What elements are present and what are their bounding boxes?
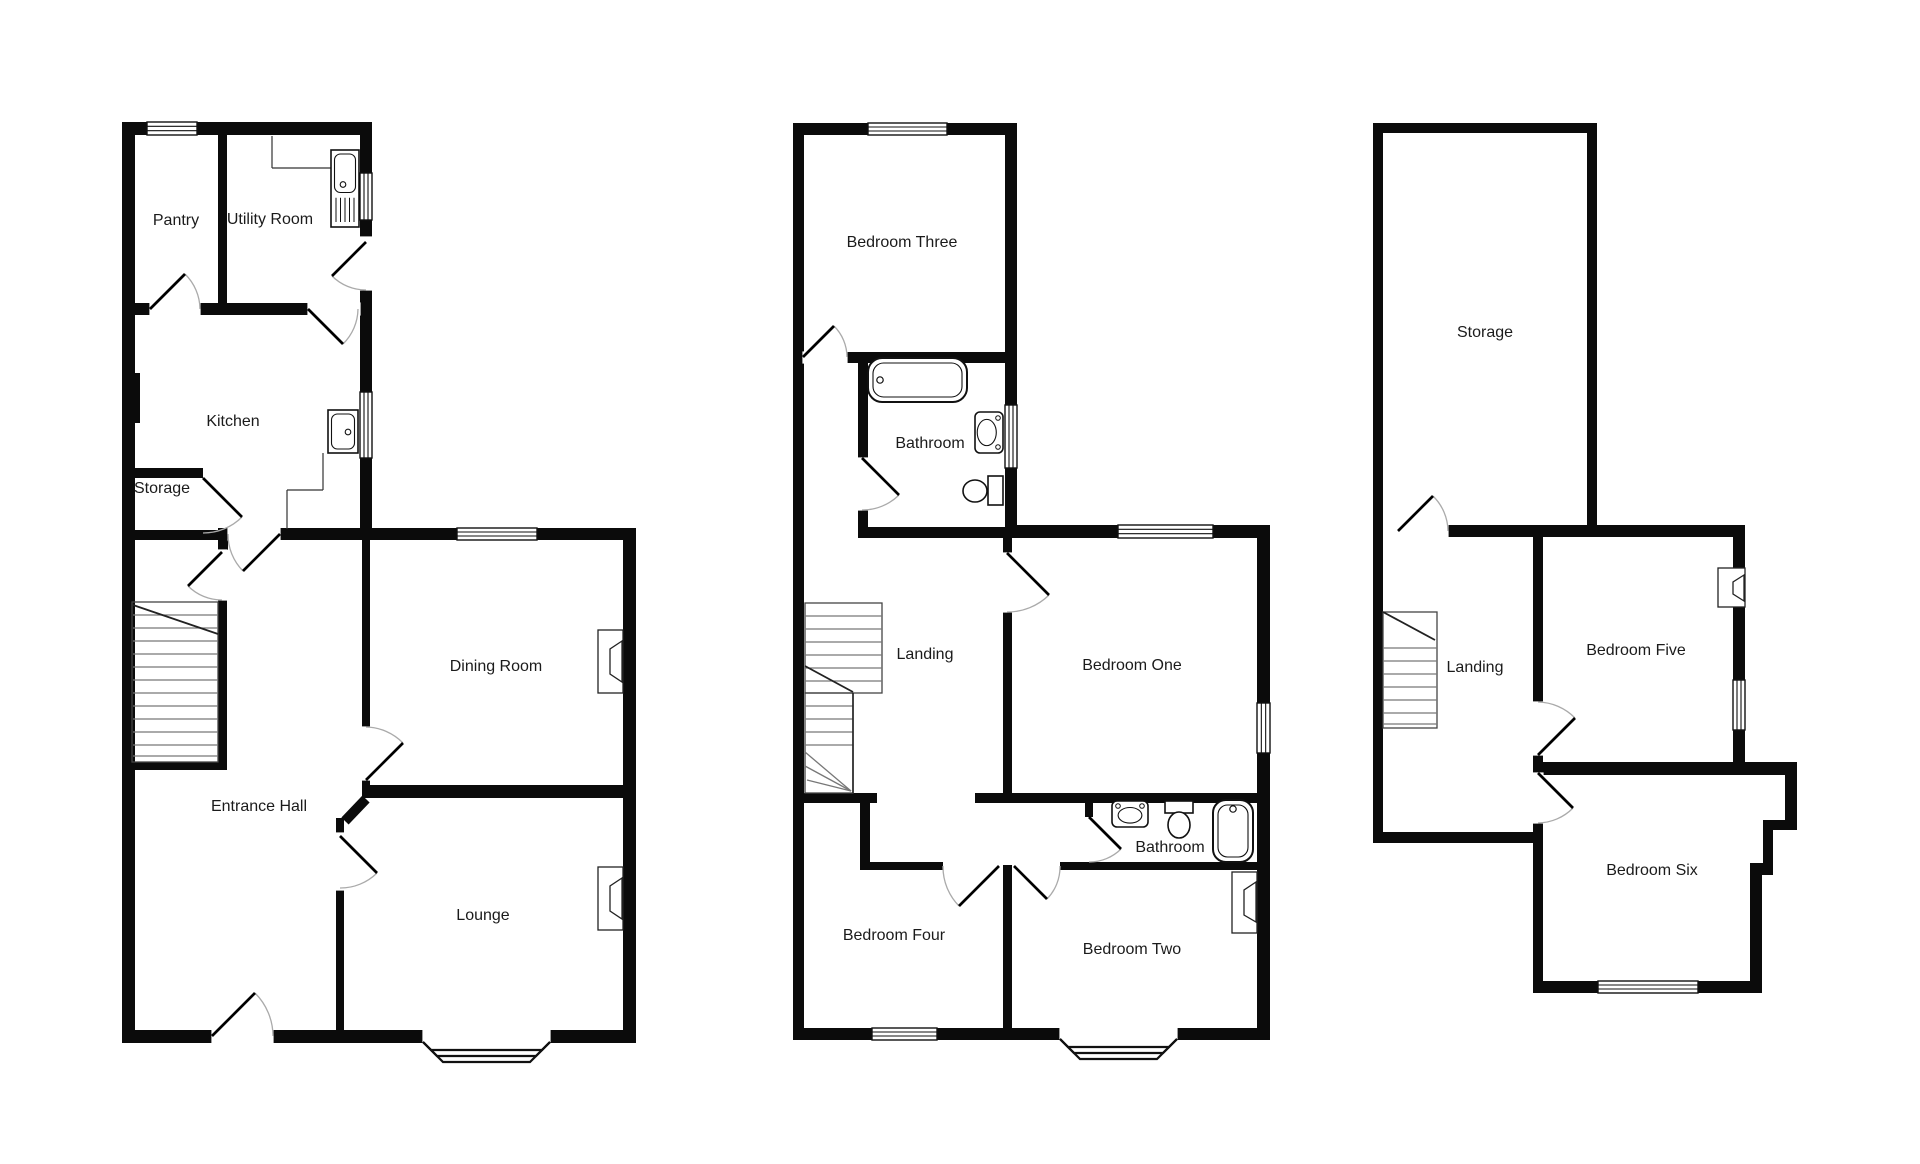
door-leaf <box>203 478 242 517</box>
door-swing-arc <box>943 866 959 906</box>
door-leaf <box>188 552 222 586</box>
room-label: Bathroom <box>1135 839 1204 856</box>
door-leaf <box>366 743 403 780</box>
stairs <box>805 693 853 793</box>
window <box>1733 680 1745 730</box>
wall <box>860 862 943 870</box>
wall <box>793 123 804 1040</box>
door-opening <box>211 1029 273 1043</box>
room-label: Landing <box>897 646 954 663</box>
wall <box>1257 525 1270 1040</box>
wall <box>122 1030 636 1043</box>
wall <box>1005 123 1017 538</box>
wall <box>218 135 227 305</box>
floor-ground-floor: PantryUtility RoomKitchenStorageEntrance… <box>122 122 636 1062</box>
door-opening <box>361 726 370 780</box>
wall <box>1373 123 1383 843</box>
floorplan-page: PantryUtility RoomKitchenStorageEntrance… <box>0 0 1920 1164</box>
stair-break-line <box>805 666 853 692</box>
window <box>1257 703 1270 753</box>
room-label: Landing <box>1447 659 1504 676</box>
stairs <box>1383 612 1437 728</box>
bathtub-tap <box>877 377 883 383</box>
toilet-bowl <box>963 480 987 502</box>
room-label: Bedroom Four <box>843 927 946 944</box>
door-opening <box>1002 552 1012 612</box>
room-label: Bedroom One <box>1082 657 1182 674</box>
window <box>1598 981 1698 993</box>
door-swing-arc <box>1047 866 1060 899</box>
door-swing-arc <box>366 727 403 743</box>
door-opening <box>1532 772 1543 823</box>
wall <box>1060 862 1263 870</box>
door-leaf <box>959 866 999 906</box>
door-opening <box>359 236 372 290</box>
room-label: Dining Room <box>450 658 542 675</box>
door-swing-arc <box>340 873 377 888</box>
room-label: Entrance Hall <box>211 798 307 815</box>
window <box>1118 525 1213 538</box>
window <box>1005 405 1017 468</box>
wall <box>1085 803 1093 817</box>
room-label: Lounge <box>456 907 509 924</box>
wall <box>1373 123 1597 133</box>
wall <box>122 122 135 1043</box>
basin <box>975 412 1003 453</box>
wall <box>1543 762 1797 775</box>
room-label: Storage <box>1457 324 1513 341</box>
fireplace-hearth <box>610 641 622 682</box>
window <box>457 528 537 540</box>
toilet-cistern <box>988 476 1003 505</box>
room-label: Bedroom Two <box>1083 941 1182 958</box>
door-opening <box>217 549 227 600</box>
wall <box>1533 843 1543 993</box>
wall <box>793 1028 1270 1040</box>
door-opening <box>307 302 360 315</box>
door-swing-arc <box>1089 849 1121 862</box>
bathtub-tap <box>1230 806 1236 812</box>
room-label: Utility Room <box>227 211 313 228</box>
wall <box>1587 123 1597 537</box>
wall <box>367 785 636 798</box>
stair-break-line <box>1383 612 1435 640</box>
stairs <box>132 602 218 762</box>
fireplace-hearth <box>610 878 622 919</box>
room-label: Storage <box>134 480 190 497</box>
room-label: Bathroom <box>895 435 964 452</box>
room-label: Bedroom Five <box>1586 642 1686 659</box>
floor-second-floor: StorageLandingBedroom FiveBedroom Six <box>1373 123 1797 993</box>
door-opening <box>1532 701 1543 755</box>
door-swing-arc <box>188 586 222 600</box>
door-opening <box>857 457 868 510</box>
stair-winder <box>805 766 851 791</box>
door-opening <box>227 527 280 540</box>
door-opening <box>802 351 847 363</box>
wall <box>1785 762 1797 830</box>
door-opening <box>1059 1027 1177 1040</box>
bay-window <box>423 1042 550 1062</box>
wall <box>135 468 203 478</box>
door-leaf <box>340 836 377 873</box>
door-leaf <box>1007 553 1049 595</box>
window <box>872 1028 937 1040</box>
wall <box>1003 865 1012 1028</box>
room-label: Bedroom Six <box>1606 862 1698 879</box>
wall-segment <box>345 799 366 821</box>
door-opening <box>335 832 344 890</box>
wall <box>1733 525 1745 775</box>
floor-plan-svg: PantryUtility RoomKitchenStorageEntrance… <box>0 0 1920 1164</box>
window <box>360 392 372 458</box>
wall <box>218 600 227 770</box>
door-opening <box>422 1029 550 1043</box>
window <box>868 123 947 135</box>
bay-window <box>1060 1039 1177 1059</box>
window <box>147 122 197 135</box>
wall <box>132 762 227 770</box>
floor-first-floor: Bedroom ThreeBathroomLandingBedroom OneB… <box>793 123 1270 1059</box>
wall <box>858 527 1005 538</box>
room-label: Pantry <box>153 212 199 229</box>
door-swing-arc <box>1007 595 1049 612</box>
wall <box>362 540 370 727</box>
door-leaf <box>1014 866 1047 899</box>
wall <box>1750 863 1762 993</box>
wall <box>122 373 140 423</box>
room-label: Kitchen <box>206 413 259 430</box>
stair-break-line <box>133 605 218 634</box>
window <box>360 173 372 220</box>
room-label: Bedroom Three <box>847 234 958 251</box>
wall <box>860 800 870 867</box>
door-opening <box>149 302 200 315</box>
wall <box>1373 832 1543 843</box>
toilet-bowl <box>1168 812 1190 838</box>
